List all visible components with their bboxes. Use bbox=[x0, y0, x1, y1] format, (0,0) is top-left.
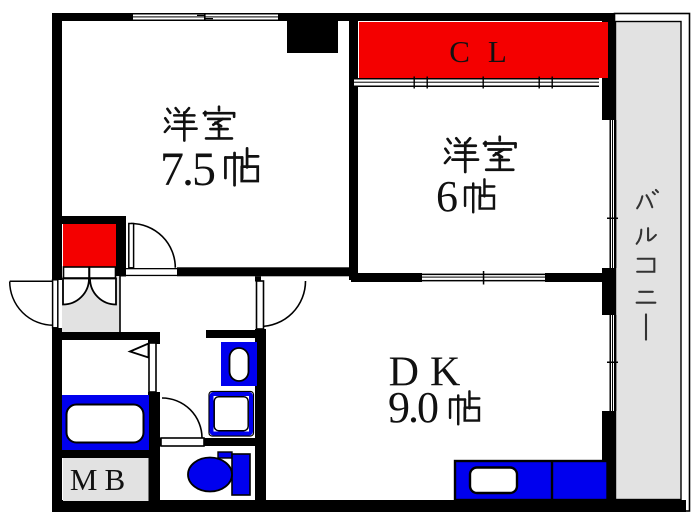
svg-text:6: 6 bbox=[436, 172, 458, 221]
svg-text:MB: MB bbox=[70, 462, 132, 497]
svg-text:CL: CL bbox=[449, 34, 525, 69]
svg-text:7.5: 7.5 bbox=[160, 143, 215, 196]
svg-text:9.0: 9.0 bbox=[388, 383, 438, 432]
